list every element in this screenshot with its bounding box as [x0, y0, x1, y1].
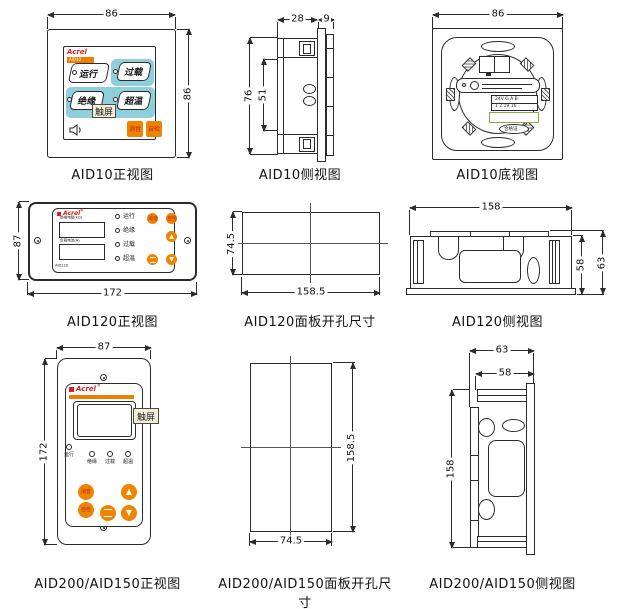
display-window-1: [59, 222, 105, 238]
run-indicator-label: 运行: [64, 452, 74, 458]
up-button[interactable]: ▲: [121, 484, 137, 500]
dimension-outer-width: 63: [470, 350, 534, 351]
dimension-inner-height: 58: [581, 236, 582, 294]
dimension-label: 158.5: [346, 431, 358, 464]
dimension-label: 76: [244, 88, 256, 105]
panel-tick: [326, 106, 334, 107]
run-indicator-label: 运行: [123, 213, 135, 220]
extension-line: [264, 130, 278, 131]
dimension-width: 86: [48, 14, 175, 15]
dimension-inner-width: 58: [476, 373, 534, 374]
screw-top: [100, 374, 107, 381]
selfcheck-button-label: 自检: [81, 508, 91, 513]
rail-step: [470, 455, 479, 456]
overload-indicator-led: [113, 69, 118, 74]
dimension-total-height: 63: [602, 231, 603, 294]
overload-indicator-label: 过载: [105, 459, 115, 465]
bottom-slat-line: [478, 541, 526, 542]
selfcheck-button-label: 自检: [148, 126, 160, 132]
enter-icon: [150, 257, 156, 263]
body-inner-line: [278, 134, 317, 135]
run-indicator-led: [66, 444, 72, 450]
dimension-height: 87: [18, 202, 19, 280]
top-slat-line: [478, 395, 526, 396]
run-indicator-led: [115, 214, 120, 219]
dimension-label: 74.5: [278, 535, 304, 547]
overtemp-indicator-label: 超温: [123, 459, 133, 465]
extension-line: [19, 201, 29, 202]
bottom-flange: [406, 288, 576, 295]
extension-line: [331, 533, 332, 546]
insulation-indicator-label: 绝缘: [87, 459, 97, 465]
dimension-inner-height: 51: [263, 59, 264, 131]
dimension-depth: 28: [278, 19, 317, 20]
terminal-marking-row: 24V G A B: [495, 97, 518, 102]
figure-caption: AID10底视图: [425, 164, 570, 183]
overtemp-indicator-led: [125, 451, 131, 457]
side-oval: [527, 257, 540, 284]
overload-indicator-led: [115, 242, 120, 247]
brand-logo: Acrel: [67, 49, 87, 57]
dimension-label: 74.5: [226, 230, 238, 256]
logo-underline-bar: [69, 395, 134, 399]
run-indicator-led: [72, 70, 77, 75]
screw-right: [184, 237, 191, 244]
extension-line: [150, 350, 151, 359]
overtemp-indicator-led: [115, 256, 120, 261]
figure-caption: AID120正视图: [30, 311, 195, 330]
up-arrow-icon: ▲: [169, 234, 174, 240]
vent-slot: [438, 237, 459, 260]
extension-line: [233, 211, 242, 212]
extension-line: [19, 279, 29, 280]
overtemp-key[interactable]: 超温: [116, 91, 152, 110]
dimension-label: 158.5: [295, 286, 328, 298]
model-label: AID10: [69, 58, 81, 62]
clip-rail-line: [552, 241, 553, 283]
dimension-label: 58: [497, 367, 514, 379]
extension-line: [409, 210, 410, 235]
extension-line: [333, 531, 355, 532]
certificate-label: 合格证: [504, 127, 518, 132]
mute-button-label: 消音: [81, 490, 91, 495]
latch-tab: [303, 96, 316, 106]
rail-step: [470, 480, 479, 481]
dimension-label: 158: [479, 201, 502, 213]
touchscreen-callout: 触屏: [133, 408, 159, 424]
extension-line: [562, 17, 563, 29]
extension-line: [577, 294, 604, 295]
latch-bump-top: [478, 418, 495, 437]
extension-line: [264, 59, 278, 60]
up-arrow-icon: ▲: [126, 488, 132, 496]
bottom-slat-block: [477, 536, 527, 548]
mute-button-label: 消音: [148, 216, 158, 221]
selfcheck-button-label: 自检: [167, 216, 177, 221]
dimension-label: 158: [445, 457, 457, 480]
extension-line: [453, 389, 470, 390]
centerline-horizontal: [234, 243, 388, 244]
clip-rail-line: [417, 241, 418, 283]
terminal-marking-row: 1 2 19 16: [495, 104, 516, 109]
figure-caption: AID120面板开孔尺寸: [225, 311, 395, 330]
up-button[interactable]: ▲: [166, 231, 177, 242]
dimension-label: 87: [13, 233, 24, 250]
display1-label: 绝缘电阻(kΩ): [60, 216, 82, 220]
label-bar-line: [482, 84, 532, 85]
brand-logo: Acrel: [76, 386, 96, 394]
dimension-label: 87: [96, 341, 113, 353]
extension-line: [277, 22, 278, 38]
overtemp-indicator-led: [113, 97, 118, 102]
dimension-height: 172: [44, 359, 45, 545]
extension-line: [379, 277, 380, 295]
label-bar: [456, 78, 540, 93]
dimension-label: 58: [576, 257, 588, 274]
overload-indicator-led: [107, 451, 113, 457]
spring-clip: [541, 88, 550, 101]
extension-line: [27, 282, 28, 295]
terminal-marking-divider: [492, 103, 537, 104]
insulation-indicator-led: [115, 228, 120, 233]
extension-line: [550, 230, 604, 231]
extension-line: [250, 154, 278, 155]
extension-line: [333, 362, 355, 363]
dimension-height: 76: [249, 38, 250, 154]
certificate-oval: 合格证: [499, 124, 529, 134]
dimension-width: 172: [28, 293, 197, 294]
selfcheck-button[interactable]: 自检: [78, 502, 94, 518]
dimension-height: 158: [451, 390, 452, 548]
slot-bottom: [481, 137, 515, 148]
dimension-label: 63: [494, 344, 511, 356]
figure-caption: AID200/AID150面板开孔尺寸: [215, 573, 395, 609]
display-window-2: [59, 244, 105, 260]
down-button[interactable]: ▼: [121, 505, 137, 521]
terminal-marking-box: 24V G A B 1 2 19 16: [491, 95, 538, 111]
dimension-height: 74.5: [232, 212, 233, 275]
clip-rail-left: [413, 240, 424, 284]
mounting-clip-bottom-inner: [303, 139, 311, 149]
overtemp-indicator-label: 超温: [123, 255, 135, 262]
display2-label: 负载电流(A): [60, 239, 80, 243]
figure-caption: AID120侧视图: [420, 311, 575, 330]
insulation-indicator-label: 绝缘: [123, 227, 135, 234]
clip-rail-line: [555, 241, 556, 283]
label-bar-circle: [470, 81, 479, 90]
dimension-label: 51: [258, 87, 270, 104]
dimension-label: 63: [597, 254, 609, 271]
speaker-icon: [69, 124, 83, 136]
dimension-width: 74.5: [250, 541, 332, 542]
extension-line: [573, 235, 583, 236]
dimension-width: 158: [410, 207, 572, 208]
dimension-width: 86: [433, 14, 563, 15]
extension-line: [333, 22, 334, 29]
extension-line: [47, 17, 48, 29]
label-bar-line: [482, 88, 522, 89]
front-frame: [317, 28, 326, 162]
panel-tick: [326, 77, 334, 78]
figure-caption: AID10正视图: [40, 164, 185, 183]
set-button[interactable]: [147, 254, 158, 265]
extension-line: [571, 210, 572, 235]
overload-indicator-label: 过载: [123, 241, 135, 248]
body-inner-line: [278, 57, 317, 58]
front-panel: [326, 34, 334, 156]
dimension-label: 86: [103, 8, 120, 20]
extension-line: [453, 547, 470, 548]
mute-button[interactable]: 消音: [147, 213, 158, 224]
connector-notch: [486, 72, 491, 76]
rail-step: [470, 520, 479, 521]
mute-button[interactable]: 消音: [78, 484, 94, 500]
selfcheck-button[interactable]: 自检: [146, 121, 162, 137]
label-recess: [488, 440, 525, 497]
extension-line: [177, 29, 189, 30]
extension-line: [249, 533, 250, 546]
extension-line: [175, 17, 176, 29]
connector-divider: [494, 57, 495, 72]
mute-button-label: 消音: [129, 126, 141, 132]
extension-line: [45, 544, 57, 545]
enter-icon: [104, 509, 112, 517]
spring-clip: [446, 88, 455, 101]
dimension-label: 86: [183, 85, 195, 102]
mute-button[interactable]: 消音: [127, 121, 143, 137]
dimension-label: 172: [38, 440, 50, 463]
latch-tab: [303, 84, 316, 94]
label-bar-dot: [462, 83, 466, 87]
side-oval: [502, 419, 525, 432]
dimension-width: 87: [57, 347, 151, 348]
down-button[interactable]: ▼: [166, 254, 177, 265]
green-label-area: [489, 112, 539, 123]
dimension-width: 158.5: [242, 292, 380, 293]
insulation-indicator-led: [67, 97, 72, 102]
overload-key[interactable]: 过载: [116, 62, 152, 81]
extension-line: [241, 277, 242, 295]
logo-mark: [69, 387, 74, 392]
extension-line: [233, 274, 242, 275]
drawing-sheet: 86 86 Acrel AID10 运行 过载 绝缘 超温 触屏: [0, 0, 622, 609]
down-arrow-icon: ▼: [169, 257, 174, 263]
figure-caption: AID200/AID150正视图: [25, 573, 190, 592]
insulation-indicator-led: [89, 451, 95, 457]
model-label: AID120: [55, 264, 68, 268]
registered-mark: ®: [80, 209, 84, 213]
dimension-panel-thickness: 9: [319, 19, 334, 20]
down-arrow-icon: ▼: [126, 509, 132, 517]
centerline-vertical: [310, 203, 311, 283]
extension-line: [533, 353, 534, 383]
panel-tick: [326, 48, 334, 49]
centerline-horizontal: [241, 447, 341, 448]
extension-line: [475, 376, 476, 390]
front-panel: [526, 383, 535, 555]
dimension-height: 86: [188, 29, 189, 158]
dimension-label: 28: [289, 13, 306, 25]
figure-caption: AID200/AID150侧视图: [415, 573, 590, 592]
registered-mark: ®: [97, 384, 101, 388]
dimension-label: 172: [101, 287, 124, 299]
extension-line: [177, 157, 189, 158]
label-recess: [459, 250, 521, 283]
extension-line: [250, 37, 278, 38]
dimension-label: 86: [490, 8, 507, 20]
centerline-vertical: [290, 356, 291, 539]
selfcheck-button[interactable]: 自检: [166, 213, 177, 224]
set-button[interactable]: [100, 505, 116, 521]
latch-bump-bottom: [478, 499, 495, 520]
display-window: [77, 404, 132, 437]
extension-line: [196, 282, 197, 295]
mounting-clip-top-inner: [303, 44, 311, 54]
extension-line: [469, 353, 470, 407]
slot-top: [481, 41, 515, 52]
screw-left: [34, 237, 41, 244]
dimension-label: 9: [321, 13, 331, 25]
dimension-height: 158.5: [352, 363, 353, 532]
panel-tick: [326, 135, 334, 136]
figure-caption: AID10侧视图: [230, 164, 370, 183]
extension-line: [45, 358, 57, 359]
touchscreen-callout: 触屏: [92, 104, 116, 118]
